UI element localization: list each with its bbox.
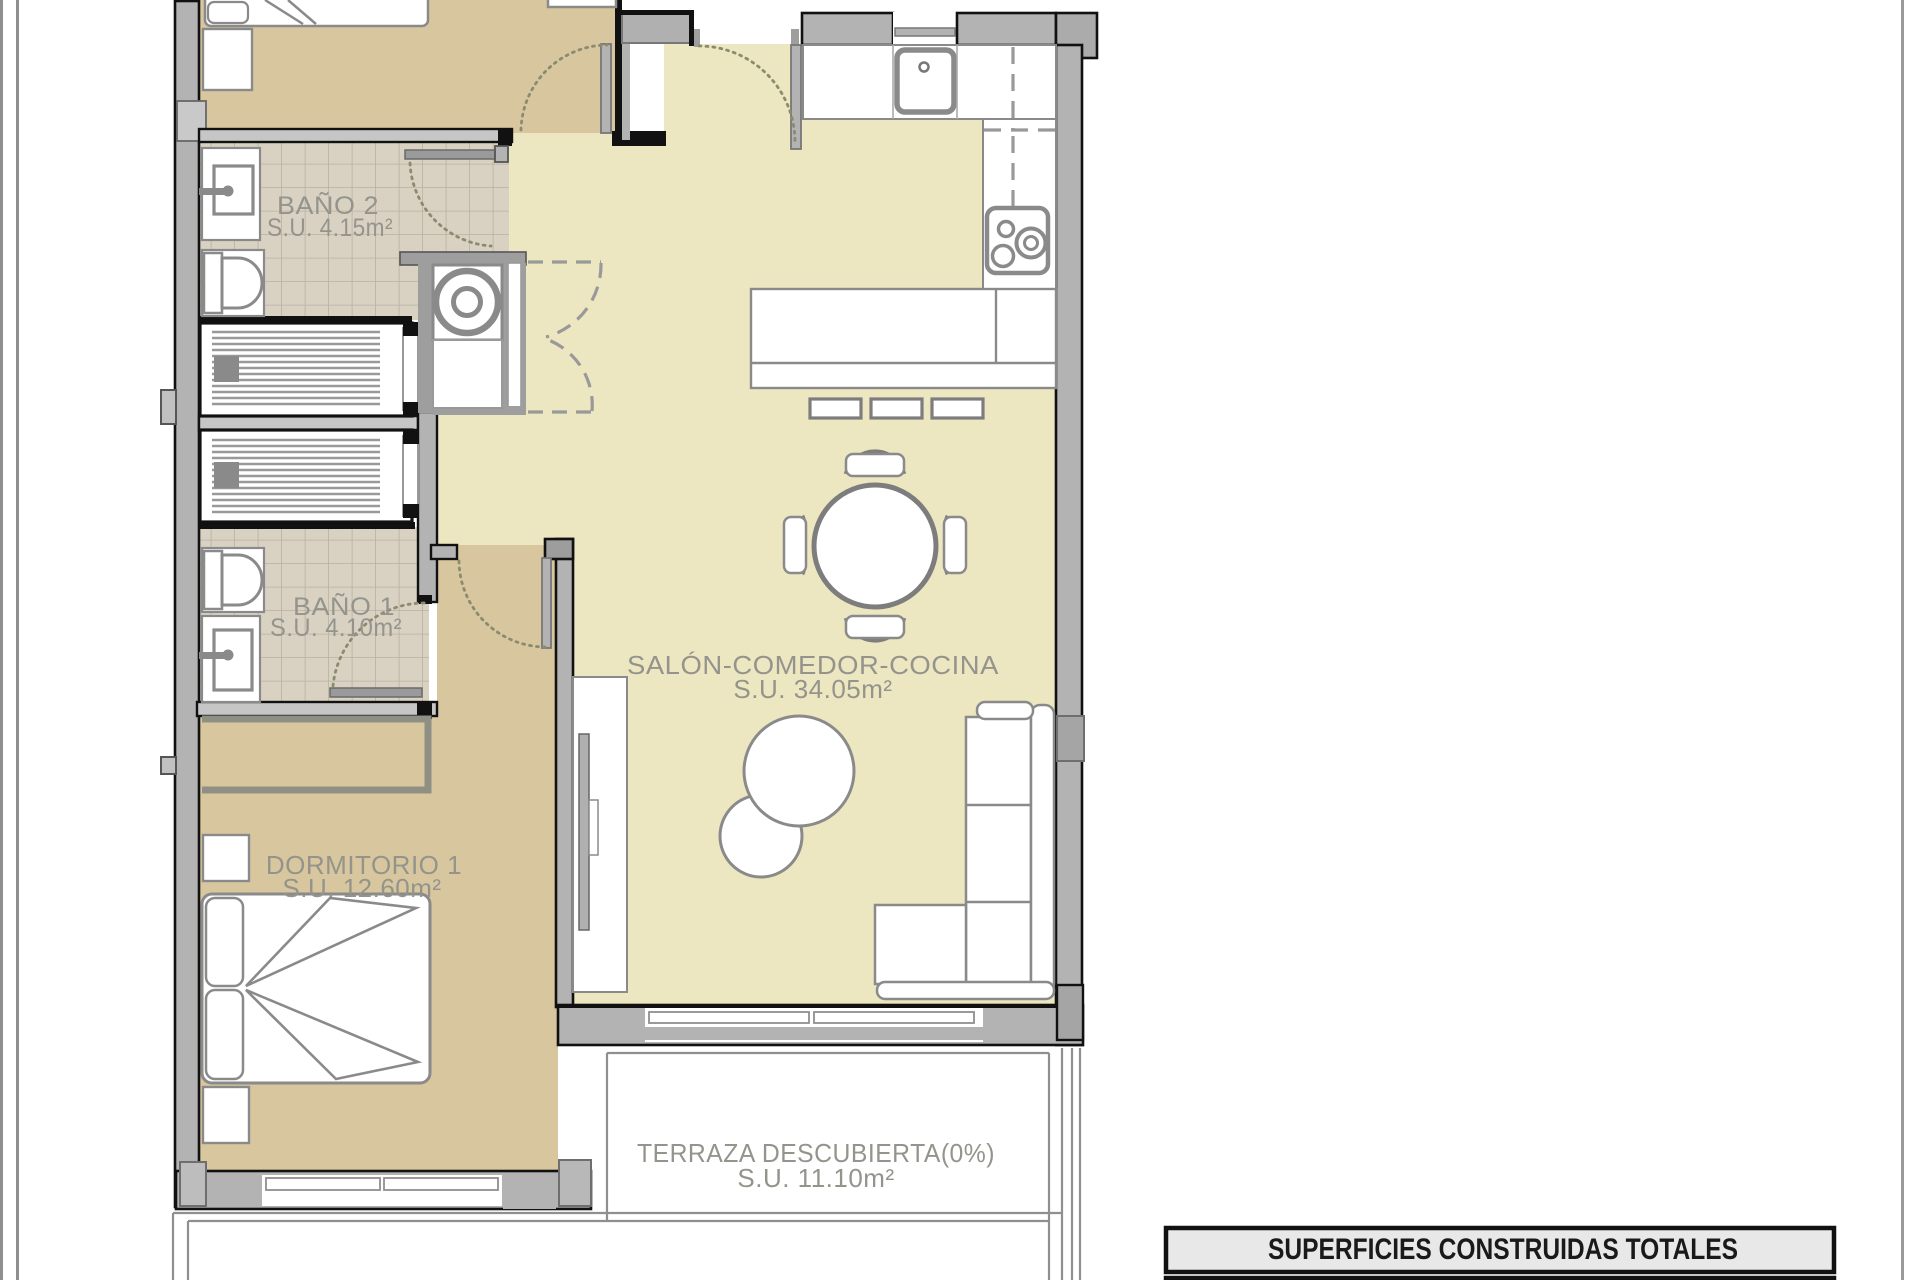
svg-text:S.U. 4.15m²: S.U. 4.15m² (267, 214, 393, 242)
svg-text:S.U. 34.05m²: S.U. 34.05m² (733, 674, 892, 704)
svg-text:S.U. 4.10m²: S.U. 4.10m² (270, 614, 402, 642)
svg-text:S.U. 12.60m²: S.U. 12.60m² (282, 873, 441, 903)
svg-text:S.U. 11.10m²: S.U. 11.10m² (737, 1163, 894, 1193)
svg-text:SUPERFICIES CONSTRUIDAS TOTALE: SUPERFICIES CONSTRUIDAS TOTALES (1268, 1233, 1738, 1266)
